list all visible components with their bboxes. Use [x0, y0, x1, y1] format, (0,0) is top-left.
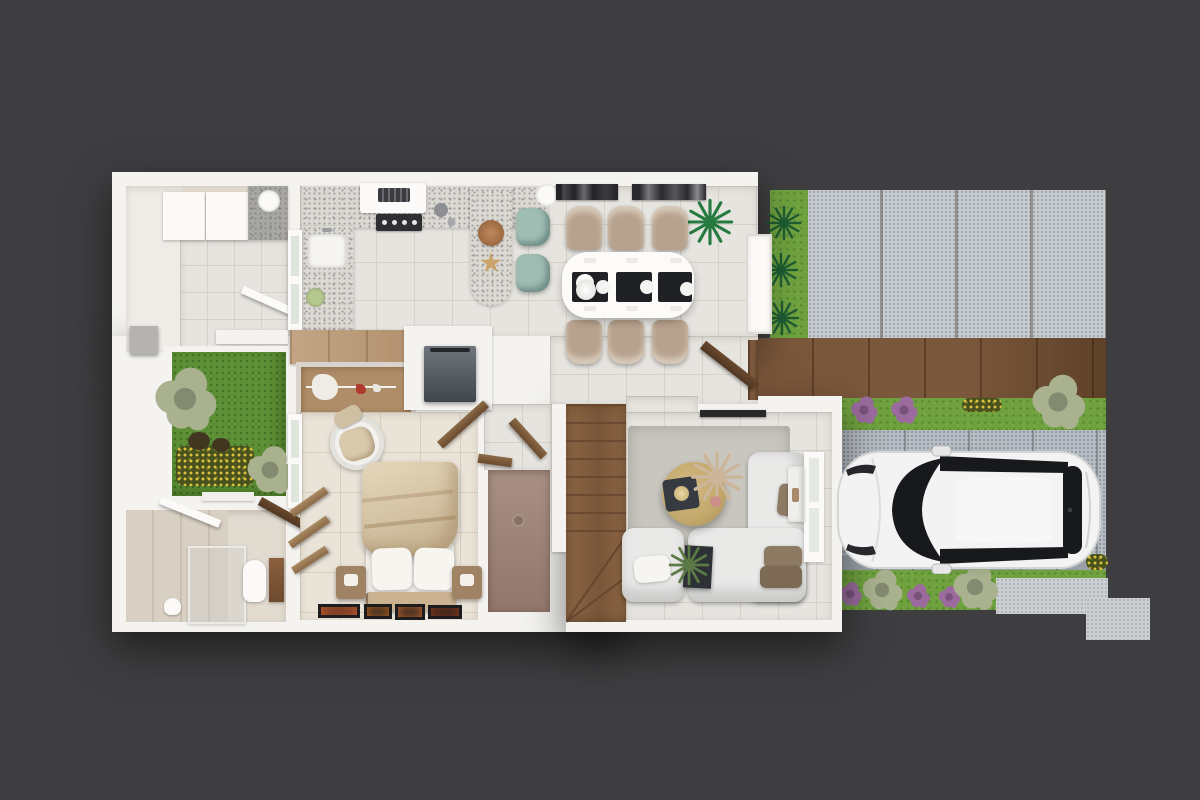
- sage-bush-icon: [148, 362, 222, 436]
- car-mirror: [932, 446, 951, 456]
- dining-chair: [608, 206, 644, 250]
- utility-wall-stub: [216, 330, 288, 344]
- dining-chair: [566, 206, 602, 250]
- sofa-brown-pillow: [760, 566, 802, 588]
- sofa-brown-pillow: [764, 546, 802, 568]
- car-antenna: [1068, 508, 1073, 513]
- tv-panel: [700, 410, 766, 417]
- wall-art-panel: [556, 184, 618, 200]
- dish-item-green: [306, 288, 325, 307]
- utility-cabinet: [163, 192, 205, 240]
- floor-plan-render: [0, 0, 1200, 800]
- kitchen-top-sink: [536, 184, 558, 206]
- stair-stringer-wall: [552, 404, 566, 552]
- stair-tread-lines: [566, 404, 626, 536]
- paver-patio: [808, 190, 1106, 340]
- sage-bush-icon: [1026, 370, 1090, 434]
- bedroom-window-glass: [291, 420, 299, 458]
- car-roof-sheen: [956, 477, 1052, 543]
- cooktop-burners: [382, 220, 387, 225]
- dining-east-door: [746, 234, 772, 334]
- yellow-flower-bed: [962, 398, 1002, 412]
- art-frame: [364, 604, 392, 619]
- bar-stool: [516, 208, 550, 246]
- utility-sink: [258, 190, 280, 212]
- bed-pillow: [413, 547, 454, 590]
- dining-chair: [652, 320, 688, 364]
- kitchen-window-glass: [291, 236, 299, 276]
- utility-meter-box: [130, 326, 158, 354]
- living-window-glass: [809, 458, 819, 502]
- hanging-clothes: [312, 374, 338, 400]
- shower-room-floor: [488, 470, 550, 612]
- courtyard-sill: [202, 492, 254, 501]
- hood-vent: [378, 188, 410, 202]
- floor-drain: [512, 514, 525, 527]
- nightstand-lamp: [344, 574, 358, 586]
- kitchen-faucet: [322, 228, 332, 232]
- art-frame: [428, 605, 462, 619]
- car-rear-window: [1063, 466, 1082, 554]
- breakfast-bar: [470, 188, 512, 306]
- palm-plant-icon: [686, 198, 734, 246]
- shower-fixture: [164, 598, 181, 615]
- car-mirror: [932, 564, 951, 574]
- toilet: [243, 560, 266, 602]
- armchair-white-pillow: [633, 554, 671, 583]
- concrete-step-corner: [1086, 598, 1150, 640]
- bathroom-wood-cabinet: [269, 558, 284, 602]
- placemat: [616, 272, 652, 302]
- placemat: [658, 272, 692, 302]
- plate: [596, 280, 610, 294]
- utility-cabinet: [206, 192, 248, 240]
- kitchen-sink: [308, 234, 346, 268]
- tray-candle: [674, 486, 689, 501]
- table-jug: [576, 280, 596, 300]
- art-frame: [395, 604, 425, 620]
- dining-chair: [608, 320, 644, 364]
- purple-bush-icon: [888, 394, 920, 426]
- washing-machine: [424, 346, 476, 402]
- purple-bush-icon: [848, 394, 880, 426]
- art-frame: [318, 604, 360, 618]
- dining-chair: [652, 206, 688, 250]
- cutlery-setting: [584, 258, 596, 263]
- cabinet-handle: [792, 488, 799, 502]
- planter-plant-icon: [668, 544, 710, 586]
- washing-machine-lid: [430, 348, 470, 352]
- shower-glass-panel: [188, 546, 246, 624]
- sideboard: [290, 330, 406, 364]
- bed-pillow: [371, 547, 412, 590]
- purple-bush-icon: [904, 582, 932, 610]
- nightstand: [452, 566, 482, 599]
- white-car: [836, 446, 1104, 574]
- decor-pink-cup: [710, 496, 721, 507]
- bar-stool: [516, 254, 550, 292]
- courtyard-dark-bush: [188, 432, 210, 450]
- bar-bowl: [478, 220, 504, 246]
- dining-chair: [566, 320, 602, 364]
- bed-blanket: [362, 462, 458, 556]
- deck-door-opening: [748, 340, 758, 400]
